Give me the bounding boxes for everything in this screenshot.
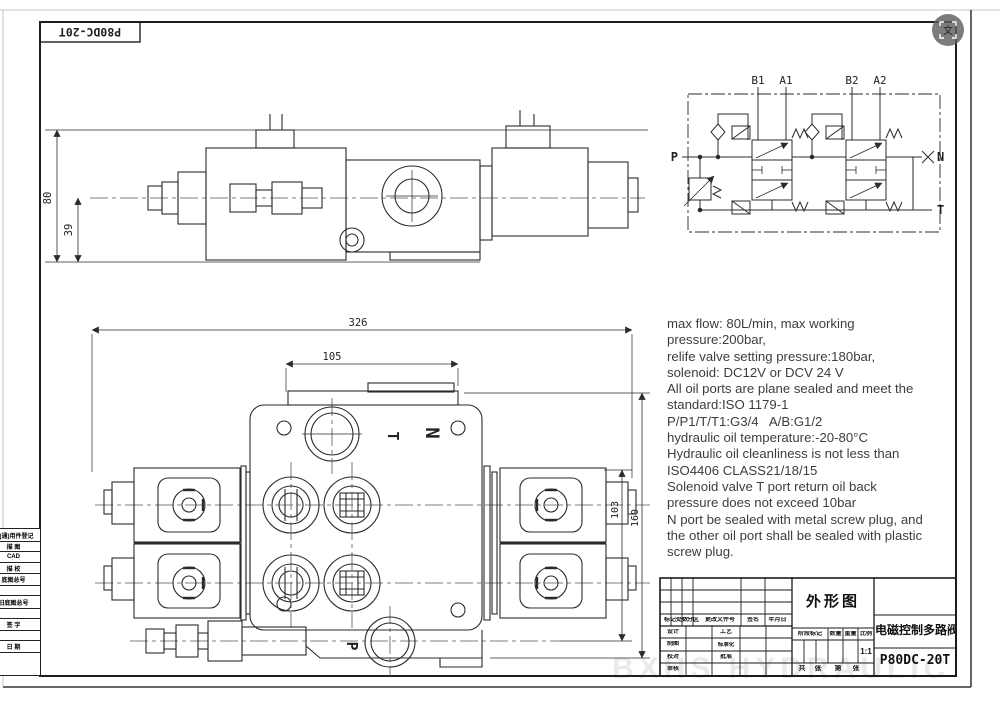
- check-valves: [711, 114, 842, 157]
- corner-model-box: P80DC-20T: [40, 22, 140, 42]
- margin-row: 日 期: [0, 641, 40, 653]
- schematic-label-n: N: [937, 150, 944, 164]
- schematic-label-p: P: [671, 150, 678, 164]
- left-solenoid-assembly: [104, 466, 250, 620]
- margin-row: [0, 609, 40, 619]
- side-dim-39: 39: [63, 224, 75, 237]
- spec-line: relife valve setting pressure:180bar,: [667, 349, 967, 365]
- spec-line: screw plug.: [667, 544, 967, 560]
- margin-row: 签 字: [0, 619, 40, 631]
- port-label-t: T: [384, 431, 402, 440]
- spec-line: Hydraulic oil cleanliness is not less th…: [667, 446, 967, 462]
- right-solenoid-assembly: [484, 466, 636, 620]
- hydraulic-schematic: B1 A1 B2 A2: [671, 74, 944, 232]
- spec-line: N port be sealed with metal screw plug, …: [667, 512, 967, 528]
- margin-row: 描 图: [0, 542, 40, 552]
- work-ports: [263, 477, 380, 611]
- schematic-label-a1: A1: [779, 74, 792, 87]
- spec-text-block: max flow: 80L/min, max working pressure:…: [667, 316, 967, 560]
- side-view: 80 39: [42, 110, 648, 262]
- spec-line: solenoid: DC12V or DCV 24 V: [667, 365, 967, 381]
- margin-row: 旧底图总号: [0, 596, 40, 609]
- translate-glyph: 文: [943, 24, 953, 37]
- side-dim-80: 80: [42, 192, 54, 205]
- schematic-label-b1: B1: [751, 74, 764, 87]
- spec-line: the other oil port shall be sealed with …: [667, 528, 967, 544]
- spec-line: All oil ports are plane sealed and meet …: [667, 381, 967, 397]
- corner-model-text: P80DC-20T: [59, 25, 121, 39]
- margin-row: [0, 631, 40, 641]
- port-label-n: N: [421, 427, 443, 438]
- translate-icon: 文: [939, 21, 957, 39]
- page: { "viewer": { "translate_glyph": "文" }, …: [0, 0, 1000, 701]
- valve-symbol-2: [826, 126, 902, 214]
- margin-row: 借(通)用件登记: [0, 529, 40, 542]
- spec-line: pressure:200bar,: [667, 332, 967, 348]
- title-block-grid: [660, 578, 956, 676]
- schematic-label-a2: A2: [873, 74, 886, 87]
- front-dim-103: 103: [610, 501, 621, 519]
- spec-line: ISO4406 CLASS21/18/15: [667, 463, 967, 479]
- margin-block: 借(通)用件登记 描 图 CAD 描 校 底图总号 旧底图总号 签 字 日 期: [0, 528, 40, 676]
- front-view: 326 105 103 160: [92, 317, 650, 676]
- front-dim-105: 105: [323, 351, 342, 363]
- spec-line: P/P1/T/T1:G3/4 A/B:G1/2: [667, 414, 967, 430]
- spec-line: max flow: 80L/min, max working: [667, 316, 967, 332]
- valve-symbol-1: [732, 126, 808, 214]
- spec-line: pressure does not exceed 10bar: [667, 495, 967, 511]
- margin-row: 底图总号: [0, 574, 40, 586]
- translate-button[interactable]: 文: [932, 14, 964, 46]
- front-dim-326: 326: [349, 317, 368, 329]
- margin-row: CAD: [0, 552, 40, 563]
- schematic-label-t: T: [937, 203, 944, 217]
- schematic-label-b2: B2: [845, 74, 858, 87]
- spec-line: standard:ISO 1179-1: [667, 397, 967, 413]
- spec-line: Solenoid valve T port return oil back: [667, 479, 967, 495]
- margin-row: [0, 586, 40, 596]
- margin-row: 描 校: [0, 563, 40, 574]
- margin-row: [0, 653, 40, 675]
- port-label-p: P: [343, 641, 361, 650]
- spec-line: hydraulic oil temperature:-20-80°C: [667, 430, 967, 446]
- relief-valve-symbol: [684, 157, 721, 210]
